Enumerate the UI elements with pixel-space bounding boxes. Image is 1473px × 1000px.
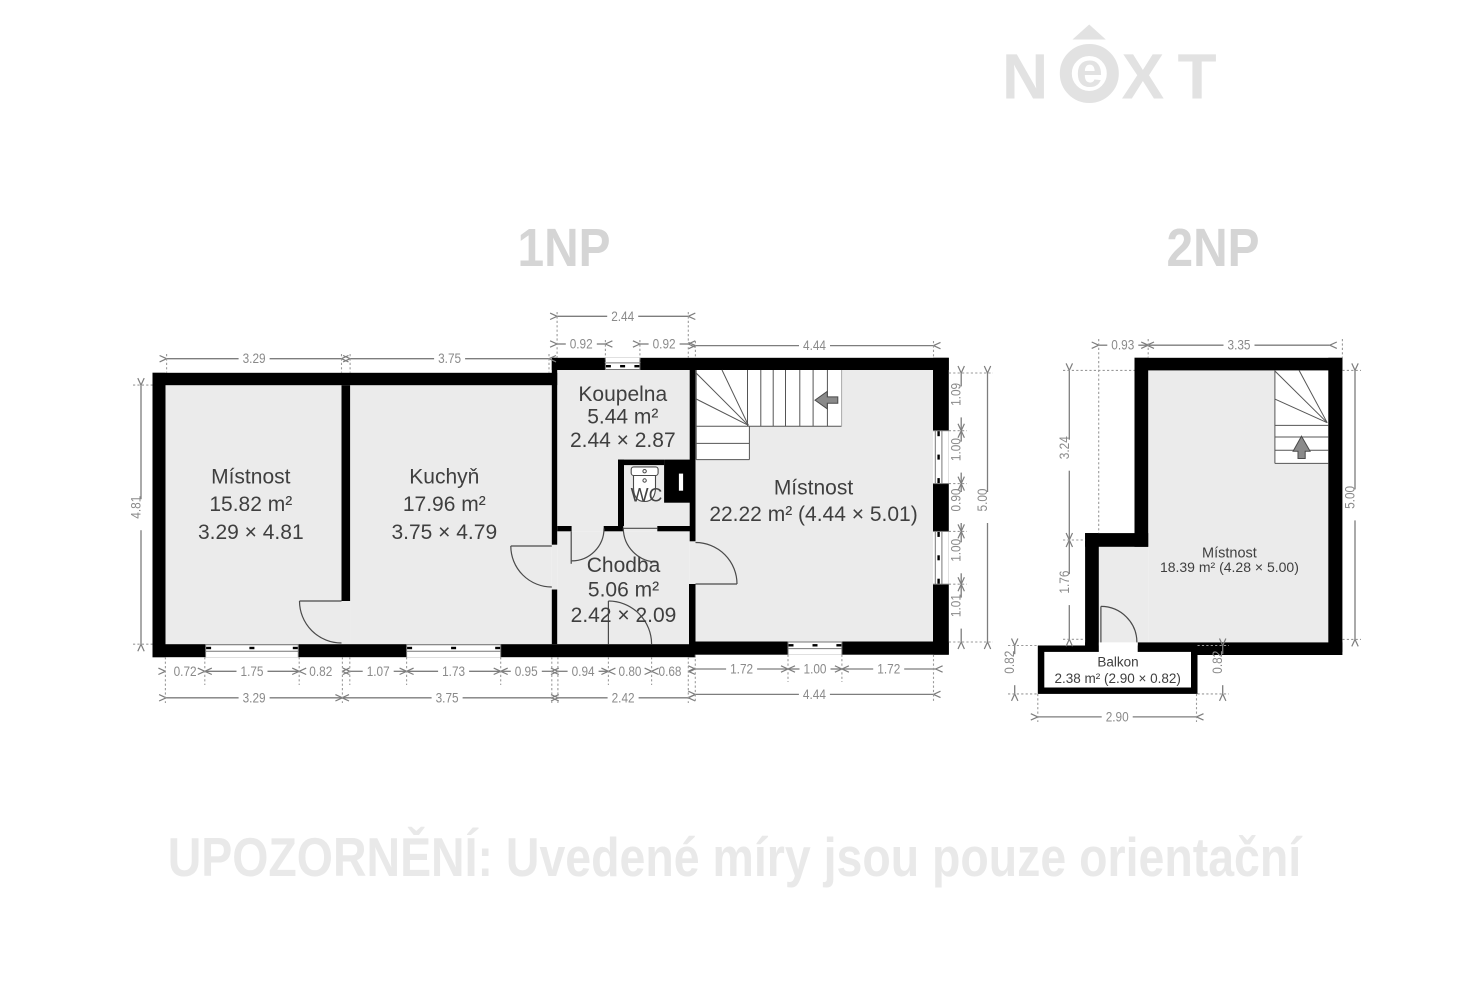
svg-text:0.92: 0.92 — [570, 337, 593, 352]
svg-text:0.80: 0.80 — [619, 664, 642, 679]
svg-text:3.29: 3.29 — [243, 690, 266, 705]
svg-text:X: X — [1122, 41, 1165, 113]
svg-text:0.82: 0.82 — [1210, 651, 1225, 674]
svg-text:2.90: 2.90 — [1106, 709, 1129, 724]
svg-text:0.90: 0.90 — [949, 489, 964, 512]
svg-text:1.75: 1.75 — [241, 664, 264, 679]
svg-text:Kuchyň: Kuchyň — [409, 465, 479, 488]
svg-text:1.09: 1.09 — [949, 383, 964, 406]
svg-text:3.24: 3.24 — [1057, 436, 1072, 459]
svg-text:Balkon: Balkon — [1097, 655, 1138, 670]
svg-text:Místnost: Místnost — [774, 476, 854, 499]
svg-text:0.95: 0.95 — [515, 664, 538, 679]
svg-text:1NP: 1NP — [518, 218, 611, 278]
svg-text:5.06 m²: 5.06 m² — [588, 579, 659, 602]
svg-text:3.35: 3.35 — [1228, 338, 1251, 353]
svg-text:3.75: 3.75 — [436, 690, 459, 705]
svg-text:5.00: 5.00 — [1343, 486, 1358, 509]
svg-text:0.92: 0.92 — [653, 337, 676, 352]
svg-text:1.01: 1.01 — [949, 594, 964, 617]
svg-text:2.42 × 2.09: 2.42 × 2.09 — [571, 604, 677, 627]
svg-text:18.39 m² (4.28 × 5.00): 18.39 m² (4.28 × 5.00) — [1160, 559, 1299, 575]
svg-text:5.00: 5.00 — [975, 489, 990, 512]
svg-text:4.81: 4.81 — [129, 496, 144, 519]
svg-text:WC: WC — [631, 486, 663, 507]
svg-text:N: N — [1002, 41, 1048, 113]
svg-text:1.72: 1.72 — [877, 662, 900, 677]
svg-text:5.44 m²: 5.44 m² — [587, 406, 658, 429]
svg-text:3.29 × 4.81: 3.29 × 4.81 — [198, 521, 304, 544]
svg-text:4.44: 4.44 — [803, 687, 826, 702]
svg-text:1.00: 1.00 — [949, 438, 964, 461]
svg-text:15.82 m²: 15.82 m² — [209, 493, 292, 516]
svg-text:Chodba: Chodba — [587, 554, 661, 577]
svg-text:1.00: 1.00 — [804, 662, 827, 677]
svg-text:0.72: 0.72 — [174, 664, 197, 679]
svg-text:0.82: 0.82 — [1002, 651, 1017, 674]
svg-text:2.44 × 2.87: 2.44 × 2.87 — [570, 429, 676, 452]
svg-text:3.75: 3.75 — [438, 351, 461, 366]
svg-text:0.82: 0.82 — [309, 664, 332, 679]
svg-text:Místnost: Místnost — [211, 465, 291, 488]
svg-text:3.75 × 4.79: 3.75 × 4.79 — [391, 521, 497, 544]
svg-text:0.68: 0.68 — [659, 664, 682, 679]
svg-text:2NP: 2NP — [1167, 218, 1260, 278]
svg-text:2.38 m² (2.90 × 0.82): 2.38 m² (2.90 × 0.82) — [1054, 671, 1180, 686]
svg-text:1.76: 1.76 — [1057, 571, 1072, 594]
svg-text:e: e — [1076, 45, 1103, 98]
svg-text:T: T — [1178, 41, 1217, 113]
svg-text:2.44: 2.44 — [611, 309, 634, 324]
svg-text:3.29: 3.29 — [243, 351, 266, 366]
svg-text:1.72: 1.72 — [730, 662, 753, 677]
svg-text:1.07: 1.07 — [367, 664, 390, 679]
svg-text:17.96 m²: 17.96 m² — [403, 493, 486, 516]
svg-text:22.22 m² (4.44 × 5.01): 22.22 m² (4.44 × 5.01) — [709, 503, 917, 526]
svg-text:0.93: 0.93 — [1111, 338, 1134, 353]
svg-text:UPOZORNĚNÍ: Uvedené míry jsou: UPOZORNĚNÍ: Uvedené míry jsou pouze orie… — [168, 825, 1303, 888]
svg-text:1.00: 1.00 — [949, 539, 964, 562]
svg-text:1.73: 1.73 — [442, 664, 465, 679]
svg-text:4.44: 4.44 — [803, 338, 826, 353]
svg-text:0.94: 0.94 — [572, 664, 595, 679]
svg-text:Koupelna: Koupelna — [578, 383, 667, 406]
svg-text:2.42: 2.42 — [612, 690, 635, 705]
